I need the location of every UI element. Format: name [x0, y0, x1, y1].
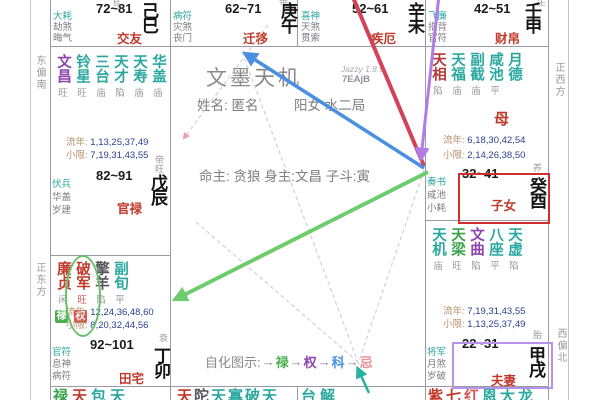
body-palace-box-purple: [452, 342, 553, 389]
liunian-ages: 流年: 1,13,25,37,49: [66, 134, 148, 148]
star-name: 三台: [92, 54, 110, 83]
liunian-ages: 流年: 6,18,30,42,54: [443, 132, 525, 146]
liunian-ages: 流年: 7,19,31,43,55: [443, 303, 525, 317]
age-range: 52~61: [352, 1, 389, 16]
minor-star: 晦气: [53, 33, 72, 44]
age-range: 82~91: [96, 168, 133, 183]
minor-star: 伏兵: [52, 179, 71, 190]
star-column: 文曲 陷: [467, 227, 485, 272]
minor-star: 奏书: [427, 177, 446, 188]
star-name-clipped: 红: [464, 389, 479, 400]
minor-star: 丧门: [173, 33, 192, 44]
age-range: 42~51: [474, 1, 511, 16]
star-brightness: 庙: [448, 83, 466, 97]
star-name: 文昌: [54, 54, 72, 83]
palace-name: 财帛: [480, 28, 520, 47]
star-brightness: 陷: [111, 85, 129, 99]
star-brightness: 平: [486, 258, 504, 272]
star-name-clipped: 龙: [518, 389, 533, 400]
star-column: 天虚 陷: [505, 227, 523, 272]
minor-star: 病符: [52, 371, 71, 382]
profile-info: 阳女 水二局: [294, 94, 365, 114]
sihua-legend: 自化图示: → 禄 → 权 → 科 → 忌: [205, 352, 373, 371]
twelve-state: 帝旺: [153, 155, 164, 173]
star-brightness: 陷: [429, 83, 447, 97]
star-column: 天梁 旺: [448, 227, 466, 272]
star-column: 天机 庙: [429, 227, 447, 272]
star-column: 副旬 平: [111, 261, 129, 306]
legend-quan: 权: [304, 352, 317, 371]
age-range: 92~101: [90, 337, 134, 352]
divider: [297, 386, 298, 400]
xiaoxian-values: 8,20,32,44,56: [90, 320, 148, 331]
selected-palace-box-red: [458, 173, 550, 224]
star-name: 副旬: [111, 261, 129, 290]
star-name: 天虚: [505, 227, 523, 256]
star-name-clipped: 大: [500, 389, 515, 400]
palace-name: 交友: [102, 28, 142, 47]
profile-name: 姓名: 匿名: [197, 94, 259, 114]
minor-star: 官符: [52, 347, 71, 358]
minor-star: 华盖: [52, 192, 71, 203]
stem-branch: 壬申: [520, 2, 542, 32]
minor-star: 病符: [173, 11, 192, 22]
star-name-clipped: 天: [211, 389, 226, 400]
arrow-glyph: →: [318, 354, 331, 369]
star-name-clipped: 紫: [428, 389, 443, 400]
star-name: 咸池: [486, 52, 504, 81]
liunian-values: 6,18,30,42,54: [467, 135, 525, 146]
star-name: 华盖: [149, 54, 167, 83]
star-column: 月德: [505, 52, 523, 83]
star-column: 华盖 庙: [149, 54, 167, 99]
star-name-clipped: 破: [245, 389, 260, 400]
star-column: 天寿 庙: [130, 54, 148, 99]
minor-star: 岁破: [427, 371, 446, 382]
star-name: 副截: [467, 52, 485, 81]
star-column: 铃星 旺: [73, 54, 91, 99]
star-brightness: 平: [486, 83, 504, 97]
star-column: 天才 陷: [111, 54, 129, 99]
mother-marker: 母: [494, 108, 509, 129]
star-name-clipped: 恩: [482, 389, 497, 400]
direction-label-west: 正西方: [551, 62, 566, 98]
star-name-clipped: 天: [72, 389, 87, 400]
stem-branch: 戊辰: [146, 174, 168, 204]
app-title: 文墨天机: [206, 62, 302, 92]
star-brightness: 庙: [130, 85, 148, 99]
divider: [30, 0, 31, 400]
app-version: Jazzy 1.8.6: [341, 64, 384, 74]
legend-label: 自化图示:: [205, 352, 261, 371]
star-name-clipped: 天: [110, 389, 125, 400]
stem-branch: 庚午: [276, 2, 298, 32]
legend-ke: 科: [332, 352, 345, 371]
star-brightness: 庙: [429, 258, 447, 272]
star-column: 文昌 旺: [54, 54, 72, 99]
star-name: 八座: [486, 227, 504, 256]
star-column: 天福 庙: [448, 52, 466, 97]
star-name-clipped: 寡: [228, 389, 243, 400]
minor-star: 官符: [428, 33, 447, 44]
minor-star: 岁建: [52, 205, 71, 216]
xiaoxian-ages: 小限: 7,19,31,43,55: [66, 147, 148, 161]
divider: [568, 0, 569, 400]
minor-star: 小耗: [427, 203, 446, 214]
xiaoxian-label: 小限:: [443, 150, 465, 161]
star-column: 八座 平: [486, 227, 504, 272]
star-name-clipped: 台: [301, 389, 316, 400]
chart-code: 7EAjB: [342, 74, 370, 85]
twelve-state: 胎: [531, 330, 542, 339]
palace-name: 迁移: [228, 28, 268, 47]
palace-name: 官禄: [102, 198, 142, 217]
xiaoxian-values: 7,19,31,43,55: [90, 150, 148, 161]
masters-line: 命主: 贪狼 身主:文昌 子斗:寅: [199, 165, 370, 185]
star-name: 天福: [448, 52, 466, 81]
stem-branch: 丁卯: [149, 347, 171, 377]
minor-star: 指背: [428, 22, 447, 33]
palace-name: 疾厄: [356, 28, 396, 47]
xiaoxian-label: 小限:: [443, 319, 465, 330]
hua-lu-target-circle: [65, 255, 101, 337]
arrow-glyph: →: [262, 354, 275, 369]
star-brightness: 庙: [149, 85, 167, 99]
liunian-label: 流年:: [443, 135, 465, 146]
minor-star: 大耗: [53, 11, 72, 22]
star-brightness: 陷: [467, 258, 485, 272]
age-range: 62~71: [225, 1, 262, 16]
star-brightness: 陷: [505, 258, 523, 272]
star-name-clipped: 七: [446, 389, 461, 400]
star-name-clipped: 天: [177, 389, 192, 400]
star-brightness: 庙: [467, 83, 485, 97]
xiaoxian-values: 1,13,25,37,49: [467, 319, 525, 330]
star-column: 天相 陷: [429, 52, 447, 97]
star-name-clipped: 包: [91, 389, 106, 400]
legend-lu: 禄: [276, 352, 289, 371]
star-name: 文曲: [467, 227, 485, 256]
star-name: 天相: [429, 52, 447, 81]
star-name: 天机: [429, 227, 447, 256]
star-name: 天才: [111, 54, 129, 83]
star-brightness: 旺: [448, 258, 466, 272]
arrow-glyph: →: [346, 354, 359, 369]
star-name: 月德: [505, 52, 523, 81]
stem-branch: 辛未: [403, 2, 425, 32]
xiaoxian-label: 小限:: [66, 150, 88, 161]
stem-branch: 己巳: [137, 2, 159, 32]
star-name: 天寿: [130, 54, 148, 83]
minor-star: 贯索: [301, 33, 320, 44]
palace-name: 田宅: [104, 368, 144, 387]
minor-star: 息神: [52, 359, 71, 370]
minor-star: 劫煞: [53, 22, 72, 33]
minor-star: 将军: [427, 347, 446, 358]
star-name: 天梁: [448, 227, 466, 256]
star-column: 三台 庙: [92, 54, 110, 99]
star-column: 副截 庙: [467, 52, 485, 97]
legend-ji: 忌: [360, 352, 373, 371]
star-column: 咸池 平: [486, 52, 504, 97]
minor-star: 灾煞: [173, 22, 192, 33]
twelve-state: 养: [531, 163, 542, 172]
star-name-clipped: 解: [320, 389, 335, 400]
star-name-clipped: 禄: [53, 389, 68, 400]
minor-star: 月煞: [427, 359, 446, 370]
xiaoxian-ages: 小限: 1,13,25,37,49: [443, 316, 525, 330]
minor-star: 天煞: [301, 22, 320, 33]
star-brightness: 旺: [54, 85, 72, 99]
star-brightness: 旺: [73, 85, 91, 99]
twelve-state-clipped: 官: [112, 0, 121, 8]
arrow-glyph: →: [290, 354, 303, 369]
minor-star: 咸池: [427, 190, 446, 201]
star-name: 铃星: [73, 54, 91, 83]
ziwei-chart-board: 大耗 劫煞 晦气 72~81 官 交友 己巳 病符 灾煞 丧门 62~71 带 …: [0, 0, 600, 400]
direction-label-west-north: 西偏北: [553, 328, 568, 364]
xiaoxian-ages: 小限: 2,14,26,38,50: [443, 147, 525, 161]
star-brightness: 庙: [92, 85, 110, 99]
star-name-clipped: 天: [262, 389, 277, 400]
direction-label-east-south: 东偏南: [32, 55, 47, 91]
minor-star: 喜神: [301, 11, 320, 22]
star-name-clipped: 陀: [194, 389, 209, 400]
direction-label-east: 正东方: [32, 262, 47, 298]
twelve-state: 衰: [157, 333, 168, 342]
minor-star: 飞廉: [428, 11, 447, 22]
xiaoxian-values: 2,14,26,38,50: [467, 150, 525, 161]
